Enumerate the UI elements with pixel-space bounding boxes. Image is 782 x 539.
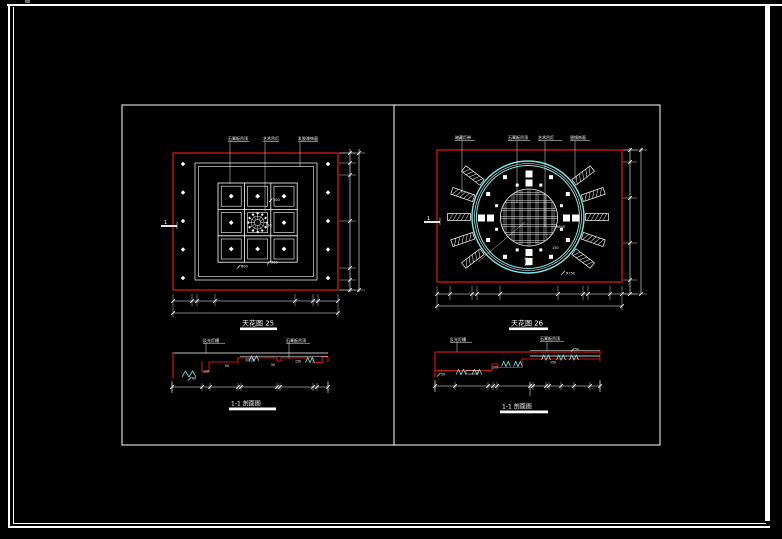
section-title: 1-1 剖面图 (502, 403, 532, 411)
diamond-marker (326, 247, 330, 251)
diamond-marker (282, 194, 287, 199)
right-ceiling-plan[interactable]: 暗藏灯带 石膏板吊顶 艺术吊灯 银镜饰面 1 R600 150 300 150 … (424, 134, 647, 330)
dim-text: 600 (241, 265, 248, 269)
right-section-dimensions (433, 380, 602, 396)
decor-fin (462, 249, 485, 268)
cad-drawing-canvas[interactable]: 石膏板吊顶 艺术吊灯 乳胶漆饰面 1 500 150 300 600 天花图 2… (0, 0, 782, 539)
callout-label: 暗藏灯带 (455, 134, 471, 140)
fin-hatch (595, 214, 599, 221)
drawing-sheet-border (122, 105, 660, 445)
callout-label: 石膏板吊顶 (540, 335, 560, 341)
dim-text: 500 (273, 198, 280, 202)
dim-text: R750 (566, 272, 575, 276)
rosette-petal-tip (248, 226, 251, 229)
insulation-hatch-marks (456, 355, 579, 375)
ring-light-squares (478, 171, 579, 266)
left-ceiling-plan[interactable]: 石膏板吊顶 艺术吊灯 乳胶漆饰面 1 500 150 300 600 天花图 2… (161, 135, 365, 330)
dim-text: 150 (550, 361, 556, 365)
light-square-small (549, 175, 553, 179)
light-square-small (503, 255, 507, 259)
fin-hatch (603, 214, 607, 221)
dim-text: 150 (295, 360, 301, 364)
light-square-small (486, 238, 490, 242)
fin-hatch (599, 214, 603, 221)
dim-text: 150 (524, 263, 531, 267)
diamond-marker (255, 194, 260, 199)
callout-label: 石膏板吊顶 (286, 337, 306, 343)
rosette-petal-tip (248, 217, 251, 220)
fin-hatch (449, 214, 453, 221)
light-square (526, 249, 533, 256)
callout-label: 石膏板吊顶 (228, 135, 248, 141)
fin-hatch (465, 214, 469, 221)
diamond-marker (229, 220, 234, 225)
rosette-ring (255, 220, 261, 226)
callout-label: 艺术吊灯 (263, 135, 279, 141)
title-underline-bar (240, 328, 277, 331)
center-lattice-grid (500, 188, 558, 247)
cyan-hatch-mark (502, 362, 511, 367)
fin-hatch (461, 214, 465, 221)
dim-text: 100 (203, 370, 209, 374)
callout-label: 反光灯槽 (450, 336, 466, 342)
diamond-marker (282, 247, 287, 252)
dim-text: 300 (524, 257, 531, 261)
right-plan-dimensions (435, 148, 647, 310)
rosette-petal-tip (261, 229, 264, 232)
dim-text: 50 (225, 364, 229, 368)
decor-fin (572, 249, 595, 268)
rosette-petal-tip (261, 213, 264, 216)
rosette-petal-tip (252, 213, 255, 216)
dim-text: R600 (556, 225, 565, 229)
diamond-marker (229, 194, 234, 199)
dim-slash (561, 271, 565, 275)
diamond-marker (282, 220, 287, 225)
light-square (526, 171, 533, 178)
dim-text: 50 (271, 363, 275, 367)
light-square-tiny (516, 248, 519, 251)
rosette-petal-tip (264, 217, 267, 220)
dim-text: 60 (192, 377, 196, 381)
diamond-marker (181, 247, 185, 251)
title-underline-bar (500, 411, 548, 414)
light-square-tiny (539, 184, 542, 187)
title-underline-bar (229, 408, 276, 411)
callout-label: 石膏板吊顶 (508, 134, 528, 140)
callout-label: 银镜饰面 (570, 134, 586, 140)
callout-label: 乳胶漆饰面 (298, 135, 318, 141)
light-square (563, 215, 570, 222)
dim-slash (437, 373, 441, 377)
diamond-marker (181, 190, 185, 194)
section-cut-number: 1 (427, 216, 430, 222)
drawing-title: 天花图 25 (242, 319, 274, 328)
light-square (572, 215, 579, 222)
dim-text: 150 (552, 246, 559, 250)
decor-fin (451, 187, 475, 201)
dim-text: 300 (271, 261, 278, 265)
decor-fin (581, 187, 605, 201)
dim-slash (188, 377, 192, 381)
light-square (487, 215, 494, 222)
drawing-title: 天花图 26 (511, 319, 544, 328)
center-lattice-circle (501, 189, 558, 246)
diamond-marker (326, 162, 330, 166)
decor-fin (448, 214, 471, 221)
decor-fin (586, 214, 609, 221)
light-square-small (549, 255, 553, 259)
diamond-marker (326, 219, 330, 223)
decor-fin (451, 232, 475, 246)
light-square-tiny (560, 204, 563, 207)
light-square (526, 180, 533, 187)
diamond-marker (326, 190, 330, 194)
title-underline-bar (509, 328, 548, 331)
dim-slash (267, 261, 271, 265)
left-plan-dimensions (171, 149, 365, 317)
fin-hatch (587, 214, 591, 221)
cyan-hatch-mark (514, 362, 523, 367)
light-square-small (566, 192, 570, 196)
leader-line (478, 222, 525, 262)
fin-hatch (457, 214, 461, 221)
light-square-tiny (495, 228, 498, 231)
left-section-dimensions (170, 381, 330, 393)
light-square-tiny (495, 204, 498, 207)
section-cut-number: 1 (164, 220, 167, 226)
light-square-small (503, 175, 507, 179)
dim-slash (237, 265, 241, 269)
callout-label: 反光灯槽 (203, 337, 219, 343)
dim-slash (571, 348, 575, 352)
dim-text: 150 (265, 224, 272, 228)
callout-label: 艺术吊灯 (538, 134, 554, 140)
right-section-detail[interactable]: 反光灯槽 石膏板吊顶 50 100 150 50 1-1 剖面图 (433, 335, 602, 413)
section-title: 1-1 剖面图 (231, 400, 261, 408)
fin-hatch (591, 214, 595, 221)
dim-text: 50 (441, 373, 445, 377)
left-section-detail[interactable]: 反光灯槽 石膏板吊顶 60 100 50 50 150 1-1 剖面图 (170, 337, 330, 410)
light-square-small (566, 238, 570, 242)
light-square (478, 215, 485, 222)
dim-text: 100 (492, 366, 498, 370)
decor-fin (462, 166, 485, 185)
diamond-marker (326, 276, 330, 280)
section-profile-red (202, 357, 328, 372)
diamond-marker (181, 276, 185, 280)
light-square-tiny (539, 248, 542, 251)
light-square-small (486, 192, 490, 196)
rosette-petal-tip (252, 229, 255, 232)
diamond-marker (181, 162, 185, 166)
diamond-marker (255, 247, 260, 252)
diamond-marker (229, 247, 234, 252)
dim-text: 50 (575, 348, 579, 352)
decor-fin (581, 232, 605, 246)
diamond-marker (181, 219, 185, 223)
fin-hatch (453, 214, 457, 221)
